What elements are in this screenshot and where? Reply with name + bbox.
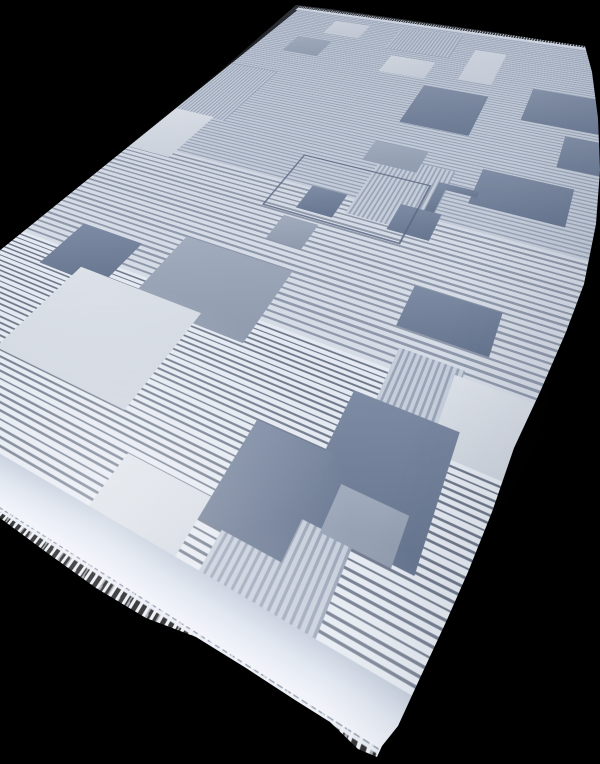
rug-block-dark — [396, 285, 503, 357]
rug — [0, 0, 600, 764]
rug-block-light — [129, 108, 214, 157]
rug-block-light — [323, 21, 370, 38]
rug-texture — [0, 8, 587, 748]
rug-block-mid — [282, 36, 332, 56]
rug-block-dark — [199, 420, 333, 563]
rug-block-light — [379, 55, 436, 79]
rug-block-mid — [266, 215, 318, 249]
rug-block-mid — [362, 141, 428, 173]
photo-background — [0, 0, 600, 764]
rug-block-light — [458, 50, 507, 85]
rug-block-dark — [399, 85, 488, 136]
